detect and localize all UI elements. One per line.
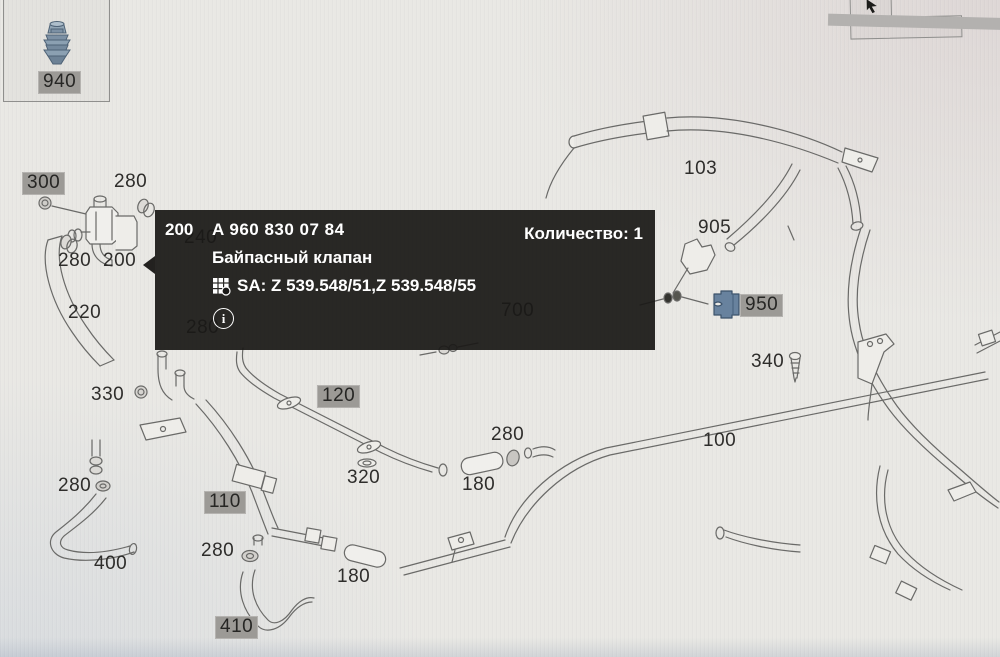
tooltip-arrow <box>143 256 155 274</box>
hose-400-drawing[interactable] <box>50 440 137 560</box>
part-label-950[interactable]: 950 <box>740 294 783 317</box>
tooltip-position-no: 200 <box>165 220 193 240</box>
tooltip-part-number: A 960 830 07 84 <box>212 220 345 240</box>
hose-180-bottom-drawing[interactable] <box>343 543 388 569</box>
part-label-100[interactable]: 100 <box>703 431 736 452</box>
part-label-180[interactable]: 180 <box>337 567 370 588</box>
part-label-905[interactable]: 905 <box>698 218 731 239</box>
part-label-300[interactable]: 300 <box>22 172 65 195</box>
parts-catalog-screen: 940 240280700280280200220330280400280320… <box>0 0 1000 657</box>
part-label-320[interactable]: 320 <box>347 468 380 489</box>
part-label-280[interactable]: 280 <box>201 541 234 562</box>
part-tooltip: 200 A 960 830 07 84 Количество: 1 Байпас… <box>155 210 655 350</box>
info-icon[interactable]: i <box>213 308 234 329</box>
part-label-110[interactable]: 110 <box>204 491 246 514</box>
hose-180-mid-drawing[interactable] <box>460 447 555 476</box>
part-label-180[interactable]: 180 <box>462 475 495 496</box>
plug-part-icon <box>4 0 109 71</box>
part-label-280[interactable]: 280 <box>58 251 91 272</box>
part-label-330[interactable]: 330 <box>91 385 124 406</box>
part-label-120[interactable]: 120 <box>317 385 360 408</box>
part-label-280[interactable]: 280 <box>491 425 524 446</box>
bracket-340-drawing[interactable] <box>858 334 894 420</box>
part-label-280[interactable]: 280 <box>114 172 147 193</box>
sa-grid-icon[interactable] <box>212 277 231 296</box>
part-label-400[interactable]: 400 <box>94 554 127 575</box>
part-label-200[interactable]: 200 <box>103 251 136 272</box>
tooltip-part-name: Байпасный клапан <box>212 248 372 268</box>
part-label-280[interactable]: 280 <box>58 476 91 497</box>
part-thumbnail-box[interactable]: 940 <box>3 0 110 102</box>
part-label-103[interactable]: 103 <box>684 159 717 180</box>
tooltip-sa-text: SA: Z 539.548/51,Z 539.548/55 <box>237 276 476 296</box>
part-label-340[interactable]: 340 <box>751 352 784 373</box>
cursor-icon <box>851 0 889 15</box>
screw-340-drawing[interactable] <box>790 353 801 383</box>
tooltip-quantity: Количество: 1 <box>524 224 643 244</box>
part-950-drawing[interactable] <box>714 291 739 318</box>
pipe-120-drawing[interactable] <box>236 348 447 476</box>
nut-330-drawing[interactable] <box>135 386 147 398</box>
part-label-220[interactable]: 220 <box>68 303 101 324</box>
part-label-940[interactable]: 940 <box>38 71 81 94</box>
bypass-valve-drawing[interactable] <box>39 196 156 266</box>
part-label-410[interactable]: 410 <box>215 616 258 639</box>
